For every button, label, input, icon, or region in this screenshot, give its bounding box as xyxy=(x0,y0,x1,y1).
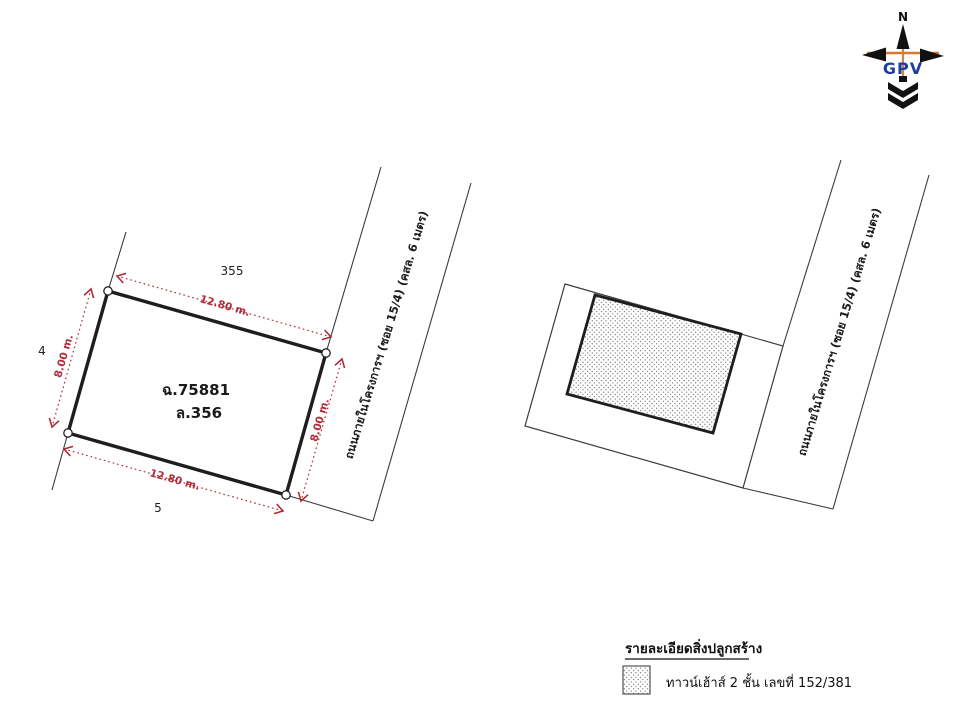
left-boundary-extension-bottom xyxy=(52,433,68,490)
legend-hatch-swatch xyxy=(623,666,650,694)
arrow-fletching-stub xyxy=(899,76,907,82)
adjacent-lot-number-left: 4 xyxy=(38,344,46,358)
corner-marker-bottom-left xyxy=(64,429,72,437)
site-plan-drawing: 12.80 m. 8.00 m. 8.00 m. 12.80 m. 355 4 … xyxy=(0,0,960,720)
road-end-connector-line xyxy=(743,488,833,509)
road-left-edge-line xyxy=(326,167,381,353)
legend-title: รายละเอียดสิ่งปลูกสร้าง xyxy=(625,638,762,657)
road-name-label: ถนนภายในโครงการฯ (ซอย 15/4) (คสล. 6 เมตร… xyxy=(794,206,884,458)
adjacent-lot-number-top: 355 xyxy=(221,264,244,278)
right-parcel-diagram: ถนนภายในโครงการฯ (ซอย 15/4) (คสล. 6 เมตร… xyxy=(525,160,929,509)
road-end-connector-line xyxy=(286,495,373,521)
legend-item-label: ทาวน์เฮ้าส์ 2 ชั้น เลขที่ 152/381 xyxy=(666,673,852,691)
corner-marker-bottom-right xyxy=(282,491,290,499)
site-plan-page: 12.80 m. 8.00 m. 8.00 m. 12.80 m. 355 4 … xyxy=(0,0,960,720)
legend: รายละเอียดสิ่งปลูกสร้าง ทาวน์เฮ้าส์ 2 ชั… xyxy=(623,638,852,694)
adjacent-lot-number-bottom: 5 xyxy=(154,501,162,515)
north-label: N xyxy=(898,10,908,24)
left-boundary-extension-top xyxy=(108,232,126,291)
gpv-logo-text: GPV xyxy=(883,59,923,78)
dimension-label-bottom: 12.80 m. xyxy=(148,467,201,493)
road-right-edge-line xyxy=(833,175,929,509)
road-left-edge-line xyxy=(783,160,841,346)
arrow-fletching-chevron-1 xyxy=(888,82,918,98)
dimension-label-top: 12.80 m. xyxy=(198,293,251,319)
deed-number-label: ฉ.75881 xyxy=(162,381,230,399)
corner-marker-top-right xyxy=(322,349,330,357)
left-parcel-diagram: 12.80 m. 8.00 m. 8.00 m. 12.80 m. 355 4 … xyxy=(38,167,471,521)
lot-number-label: ล.356 xyxy=(176,404,222,422)
road-name-label: ถนนภายในโครงการฯ (ซอย 15/4) (คสล. 6 เมตร… xyxy=(341,209,431,461)
corner-marker-top-left xyxy=(104,287,112,295)
east-arrowhead-icon xyxy=(920,49,944,63)
north-arrowhead-icon xyxy=(897,24,910,49)
north-compass: N GPV xyxy=(862,10,944,109)
